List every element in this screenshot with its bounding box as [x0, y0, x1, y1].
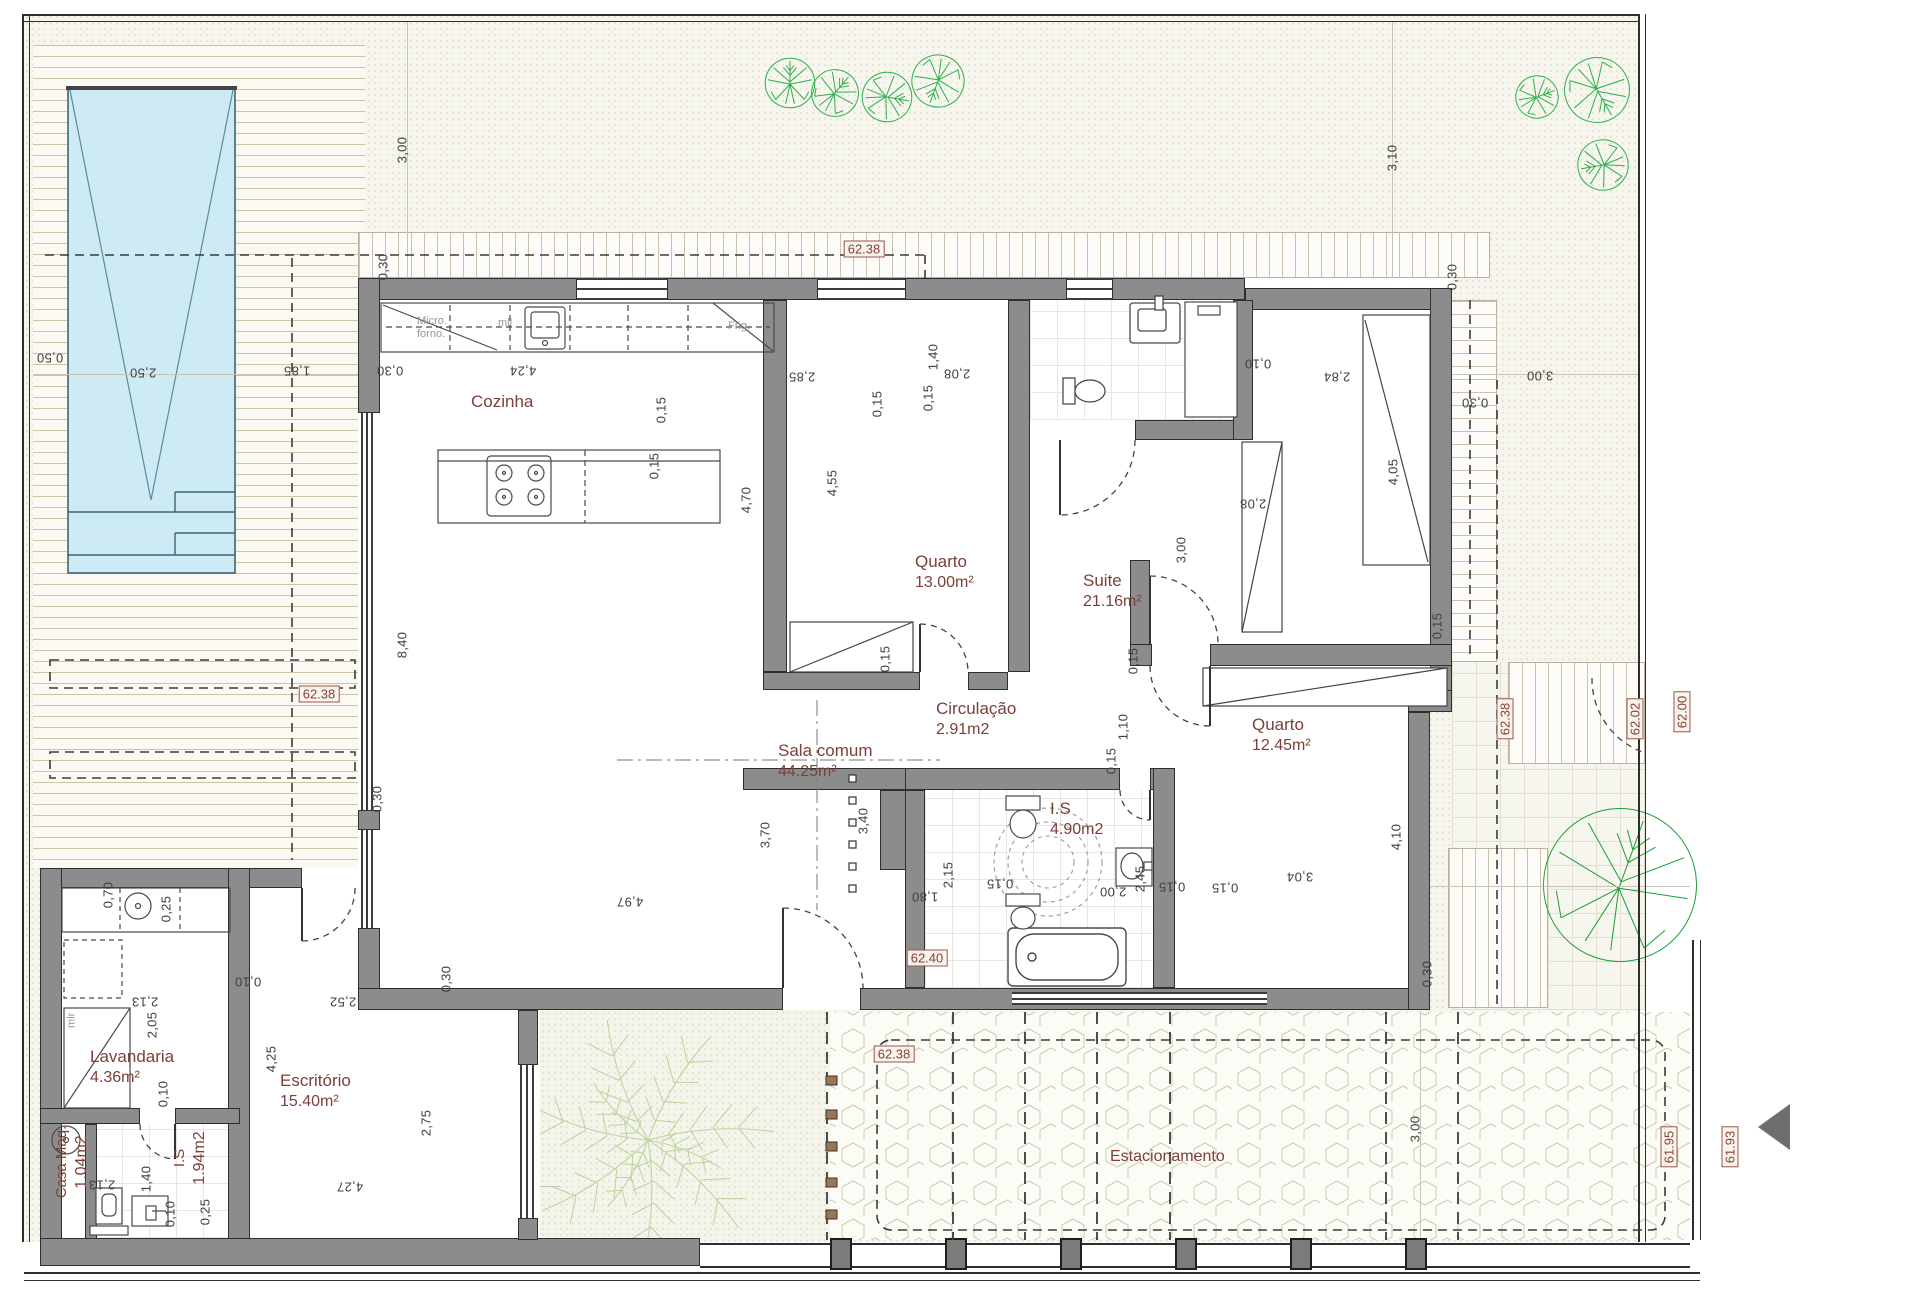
dimension-label: 1,80	[912, 890, 939, 905]
dimension-label: 0,25	[159, 896, 174, 923]
dimension-label: 0,30	[1445, 264, 1460, 291]
parking-stall-lines	[827, 1012, 1458, 1240]
dimension-label: 2,13	[132, 995, 159, 1010]
dimension-label: 0,15	[878, 646, 893, 673]
dimension-label: 4,10	[1389, 824, 1404, 851]
dimension-label: 3,00	[1174, 537, 1189, 564]
dimension-label: 1,40	[139, 1166, 154, 1193]
room-label-suite: Suite 21.16m²	[1083, 570, 1142, 613]
room-name: Casa Maq.	[52, 1126, 72, 1199]
parking-outline	[877, 1040, 1665, 1230]
room-label-is2: I.S 1.94m2	[170, 1131, 210, 1184]
dimension-label: 0,10	[156, 1081, 171, 1108]
dimension-label: 3,40	[856, 808, 871, 835]
dimension-label: 0,10	[163, 1201, 178, 1228]
dimension-label: 3,04	[1287, 870, 1314, 885]
dimension-label: 0,15	[987, 877, 1014, 892]
setback-line	[45, 255, 925, 278]
room-area: 12.45m²	[1252, 736, 1311, 757]
room-area: 15.40m²	[280, 1092, 351, 1113]
room-label-quarto1: Quarto 13.00m²	[915, 551, 974, 594]
microwave-label: Micro. forno.	[417, 315, 447, 340]
room-label-quarto2: Quarto 12.45m²	[1252, 714, 1311, 757]
washer-label: mlr	[65, 1013, 78, 1028]
room-label-estacionamento: Estacionamento	[1110, 1147, 1225, 1168]
room-name: I.S	[170, 1131, 190, 1184]
elevation-marker: 61.93	[1722, 1127, 1739, 1168]
dimension-label: 0,15	[1126, 648, 1141, 675]
dimension-label: 0,30	[439, 966, 454, 993]
dimension-label: 0,10	[235, 975, 262, 990]
dimension-label: 2,75	[419, 1110, 434, 1137]
elevation-marker: 62.40	[907, 950, 948, 967]
elevation-marker: 61.95	[1661, 1127, 1678, 1168]
room-name: Escritório	[280, 1070, 351, 1092]
room-area: 4.90m2	[1050, 820, 1103, 841]
dimension-label: 3,10	[1385, 145, 1400, 172]
dimension-label: 8,40	[395, 632, 410, 659]
kitchen-island	[438, 450, 720, 523]
dimension-label: 3,00	[1527, 369, 1554, 384]
bathtub-icon	[1008, 928, 1126, 986]
dimension-label: 4,24	[510, 364, 537, 379]
dimension-label: 0,50	[37, 351, 64, 366]
dimension-label: 3,00	[395, 137, 410, 164]
dimension-label: 0,15	[654, 397, 669, 424]
dimension-label: 4,97	[617, 895, 644, 910]
room-label-is1: I.S 4.90m2	[1050, 798, 1103, 841]
dimension-label: 4,05	[1386, 459, 1401, 486]
dimension-label: 2,00	[1100, 885, 1127, 900]
dimension-label: 2,85	[789, 370, 816, 385]
laundry-counter	[62, 888, 230, 932]
dimension-label: 0,30	[377, 364, 404, 379]
dimension-label: 2,08	[1240, 497, 1267, 512]
wc-sink-icon	[1130, 296, 1180, 343]
room-name: Circulação	[936, 698, 1016, 720]
room-name: Estacionamento	[1110, 1147, 1225, 1168]
room-name: Quarto	[1252, 714, 1311, 736]
dimension-label: 0,30	[370, 786, 385, 813]
room-label-sala: Sala comum 44.25m²	[778, 740, 872, 783]
dimension-label: 0,15	[1104, 748, 1119, 775]
dimension-label: 4,70	[739, 487, 754, 514]
dimension-label: 1,85	[284, 364, 311, 379]
elevation-marker: 62.38	[299, 686, 340, 703]
room-name: I.S	[1050, 798, 1103, 820]
elevation-marker: 62.38	[1497, 699, 1514, 740]
toilet-icon	[90, 1188, 128, 1235]
dimension-label: 2,05	[145, 1012, 160, 1039]
stove-icon	[487, 456, 551, 516]
dimension-label: 3,70	[758, 822, 773, 849]
floor-plan-canvas: Cozinha Quarto 13.00m² Suite 21.16m² Cir…	[0, 0, 1920, 1298]
room-name: Suite	[1083, 570, 1142, 592]
dimension-label: 0,15	[647, 453, 662, 480]
entrance-arrow-icon	[1758, 1104, 1790, 1150]
wc-toilet-icon	[1063, 378, 1105, 404]
dimension-label: 2,45	[1133, 866, 1148, 893]
room-area: 44.25m²	[778, 762, 872, 783]
elevation-marker: 62.38	[874, 1046, 915, 1063]
axis-cross	[617, 700, 940, 910]
elevation-marker: 62.00	[1674, 692, 1691, 733]
room-label-escritorio: Escritório 15.40m²	[280, 1070, 351, 1113]
room-name: Quarto	[915, 551, 974, 573]
dimension-label: 0,30	[376, 254, 391, 281]
dimension-label: 1,10	[1116, 714, 1131, 741]
dimension-label: 0,30	[1462, 396, 1489, 411]
dimension-label: 2,08	[944, 367, 971, 382]
room-area: 21.16m²	[1083, 592, 1142, 613]
dimension-label: 0,25	[198, 1199, 213, 1226]
dimension-label: 4,55	[825, 470, 840, 497]
room-area: 2.91m2	[936, 720, 1016, 741]
dimension-label: 2,50	[130, 366, 157, 381]
dimension-label: 4,25	[264, 1046, 279, 1073]
toilet-icon	[1006, 796, 1040, 838]
washer-icon	[64, 940, 122, 998]
wc-shower-icon	[1185, 302, 1237, 417]
room-label-circulacao: Circulação 2.91m2	[936, 698, 1016, 741]
room-name: Sala comum	[778, 740, 872, 762]
dimension-label: 3,00	[1408, 1116, 1423, 1143]
room-label-cozinha: Cozinha	[471, 391, 533, 413]
deck-bench	[50, 660, 355, 688]
dimension-label: 0,15	[1430, 613, 1445, 640]
dimension-label: 2,15	[941, 862, 956, 889]
dimension-label: 2,13	[89, 1178, 116, 1193]
room-area: 13.00m²	[915, 573, 974, 594]
dimension-label: 0,30	[1420, 961, 1435, 988]
dimension-label: 4,27	[337, 1180, 364, 1195]
dimension-label: 2,84	[1324, 370, 1351, 385]
fridge-label: Frig.	[728, 320, 750, 333]
room-area: 1.94m2	[189, 1131, 210, 1184]
dimension-label: 0,15	[1159, 880, 1186, 895]
dimension-label: 0,15	[1212, 881, 1239, 896]
dimension-label: 2,52	[330, 995, 357, 1010]
room-name: Cozinha	[471, 391, 533, 413]
deck-bench	[50, 752, 355, 778]
room-name: Lavandaria	[90, 1046, 174, 1068]
bidet-icon	[1006, 894, 1040, 929]
elevation-marker: 62.38	[844, 241, 885, 258]
elevation-marker: 62.02	[1627, 699, 1644, 740]
dishwasher-label: mll	[498, 317, 512, 330]
dimension-label: 1,40	[926, 344, 941, 371]
room-label-casa-maq: Casa Maq. 1.04m2	[52, 1126, 92, 1199]
dimension-label: 0,15	[921, 385, 936, 412]
dimension-label: 0,10	[1245, 357, 1272, 372]
dimension-label: 0,15	[870, 391, 885, 418]
dimension-label: 0,70	[101, 882, 116, 909]
